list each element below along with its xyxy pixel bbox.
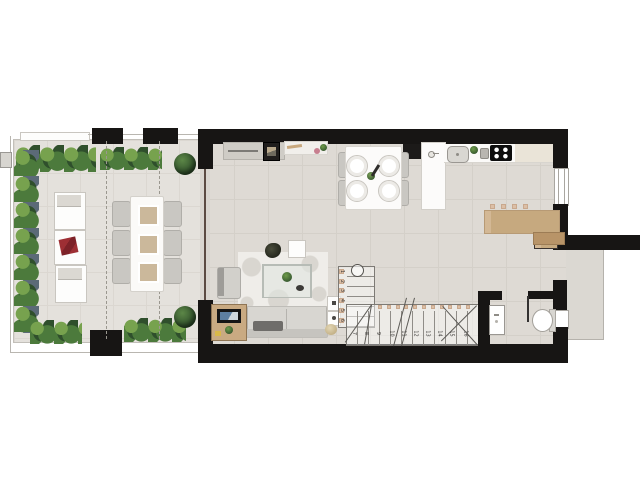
stair-step-number: 1 (339, 270, 344, 273)
plate (378, 180, 400, 202)
hedge-left-column (14, 150, 39, 333)
washbasin (489, 305, 505, 335)
stair-step-number: 9 (375, 332, 380, 335)
entry-landing (566, 250, 604, 340)
wall-right-lower-2 (553, 327, 568, 363)
outdoor-dining-table (130, 196, 164, 292)
seat-pad (138, 234, 159, 255)
lounge-chair-3 (55, 265, 87, 303)
newel-circle (351, 264, 364, 277)
stair-step-number: 5 (339, 309, 344, 312)
books (215, 331, 221, 336)
stair-step-number: 4 (339, 299, 344, 302)
side-table (288, 240, 306, 258)
stair-step-number: 10 (389, 330, 394, 336)
counter-cabinets (515, 144, 553, 162)
round-bush-top (174, 153, 196, 175)
plate (378, 155, 400, 177)
lounge-cushion (57, 195, 81, 207)
terrace-wall-top-1 (92, 128, 123, 144)
throw-blanket (253, 321, 283, 331)
bar-stool (501, 204, 506, 209)
decor-rod (228, 150, 258, 152)
tv-screen (217, 309, 241, 323)
pouf (325, 324, 337, 335)
terrace-wall-top-2 (143, 128, 178, 144)
bathroom-door-leaf (527, 296, 529, 322)
shelf-plant (320, 144, 327, 151)
terrace-railing-left (10, 136, 11, 352)
cabinet-plant (225, 326, 233, 334)
armchair (217, 267, 241, 299)
bar-stool (523, 204, 528, 209)
wall-right-lower-1 (553, 280, 567, 310)
overhang-dashed-line-1 (106, 141, 107, 339)
outdoor-chair (112, 230, 131, 256)
decor-dot (332, 301, 336, 305)
hedge-bottom-1 (30, 320, 82, 344)
kitchen-island (421, 142, 446, 210)
sliding-glass-door (200, 169, 210, 300)
floor-plan: 123456 78910111213141516 (0, 0, 640, 480)
plate (346, 180, 368, 202)
wall-bottom (198, 344, 568, 363)
wall-art-image (267, 147, 276, 156)
stair-step-number: 2 (339, 280, 344, 283)
window-right (554, 168, 569, 206)
herb-plant (470, 146, 478, 154)
hedge-top-mid (100, 147, 162, 170)
stair-step-number: 12 (413, 330, 418, 336)
outdoor-chair (112, 201, 131, 227)
sink-drain (456, 153, 459, 156)
round-bush-bottom (174, 306, 196, 328)
stair-step-number: 6 (339, 318, 344, 321)
glass-door-frame (204, 169, 206, 300)
coffee-table (262, 264, 312, 298)
cooktop (490, 145, 512, 161)
lounge-cushion (58, 268, 82, 280)
bathroom-wall-top-left (478, 291, 502, 300)
wall-right-top (553, 129, 568, 168)
wall-art (263, 142, 280, 161)
decor-dot (332, 316, 336, 320)
bathroom-wall-top-right (528, 291, 553, 299)
wall-left-top (198, 129, 213, 169)
island-faucet-stem (433, 153, 439, 154)
outdoor-chair (163, 201, 182, 227)
lounge-chair-2 (54, 230, 86, 265)
seat-pad (138, 262, 159, 283)
breakfast-bar-lower (533, 232, 565, 245)
basin-faucet (494, 314, 499, 316)
seat-pad (138, 205, 159, 226)
sofa-seam (286, 309, 287, 329)
tv-image (220, 312, 238, 320)
outdoor-chair (112, 258, 131, 284)
stair-step-number: 14 (437, 330, 442, 336)
breakfast-bar (484, 210, 560, 234)
lounge-chair-1 (54, 192, 86, 230)
kitchen-sink (447, 146, 469, 163)
red-throw (59, 236, 79, 255)
stair-step-number: 13 (425, 330, 430, 336)
ac-unit (0, 152, 12, 168)
wall-arm-right (566, 235, 640, 250)
outdoor-chair (163, 258, 182, 284)
basin-drain (495, 320, 498, 323)
flowers (314, 148, 320, 154)
toilet (532, 309, 553, 332)
plate (346, 155, 368, 177)
faucet (480, 148, 489, 159)
bar-stool (490, 204, 495, 209)
sofa (246, 306, 328, 338)
tv-cabinet (211, 304, 247, 341)
cutting-board (287, 144, 302, 149)
armchair-back (218, 268, 224, 296)
terrace-planter-box (20, 132, 90, 141)
decor-bowl (296, 285, 304, 291)
bar-stool (512, 204, 517, 209)
shelf (284, 141, 328, 155)
plant-pot (282, 272, 292, 282)
outdoor-chair (163, 230, 182, 256)
stair-step-number: 3 (339, 289, 344, 292)
